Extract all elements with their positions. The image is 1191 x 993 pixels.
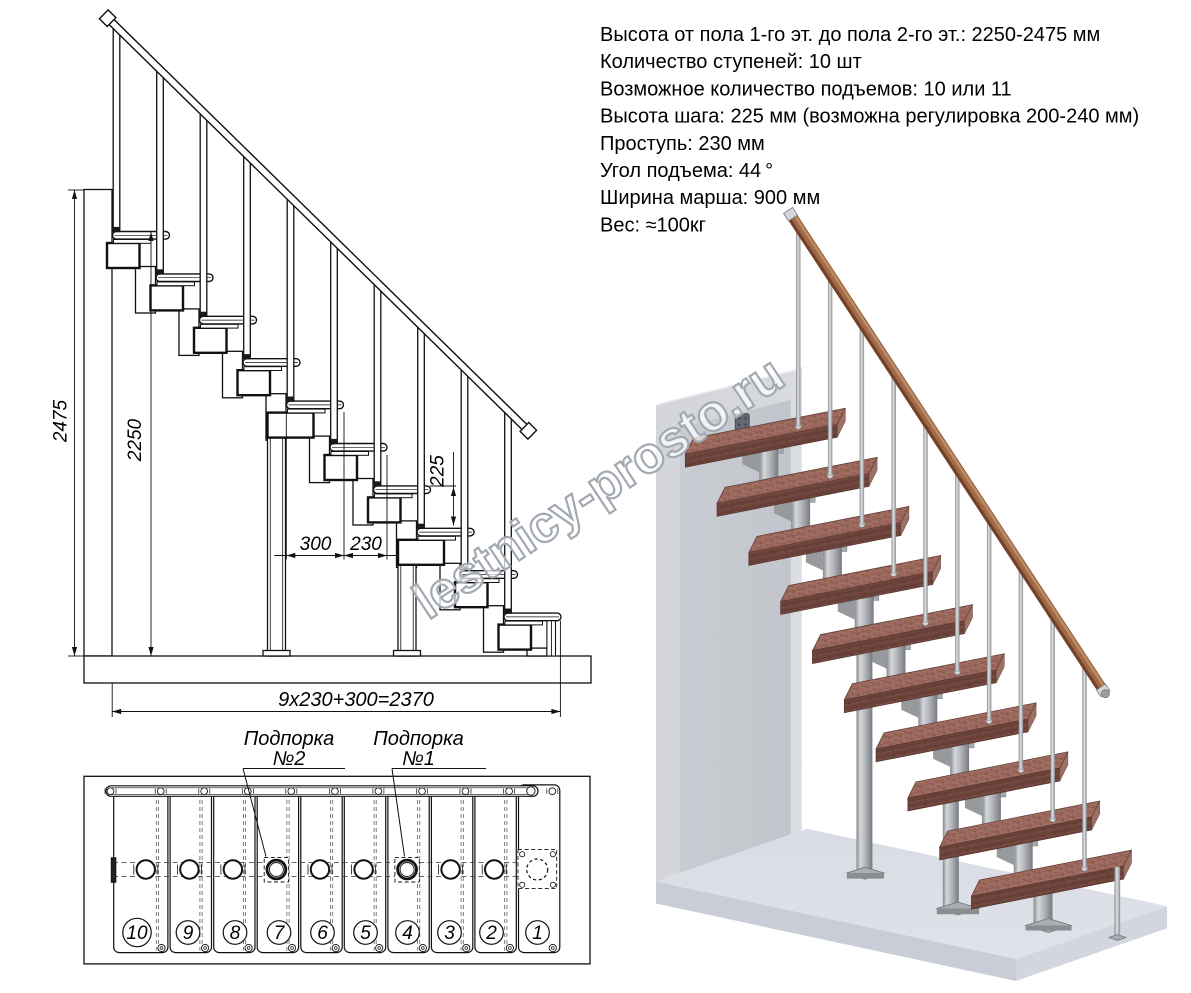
svg-text:225: 225 — [428, 455, 449, 488]
svg-text:6: 6 — [317, 923, 328, 944]
svg-text:230: 230 — [349, 534, 382, 555]
svg-text:4: 4 — [402, 923, 413, 944]
svg-text:№1: №1 — [402, 748, 435, 770]
svg-text:Высота шага: 225 мм (возможна: Высота шага: 225 мм (возможна регулировк… — [600, 106, 1139, 128]
svg-text:10: 10 — [126, 923, 148, 944]
svg-text:Угол подъема: 44 °: Угол подъема: 44 ° — [600, 160, 773, 182]
svg-text:1: 1 — [532, 923, 543, 944]
svg-text:300: 300 — [300, 534, 332, 555]
svg-text:Возможное количество подъемов:: Возможное количество подъемов: 10 или 11 — [600, 78, 1012, 100]
svg-text:9x230+300=2370: 9x230+300=2370 — [278, 689, 434, 711]
svg-text:2250: 2250 — [125, 418, 146, 462]
svg-text:Подпорка: Подпорка — [373, 728, 464, 750]
svg-text:Ширина марша: 900 мм: Ширина марша: 900 мм — [600, 187, 820, 209]
svg-text:2475: 2475 — [51, 399, 72, 443]
svg-text:7: 7 — [274, 923, 286, 944]
svg-text:3: 3 — [444, 923, 455, 944]
svg-text:Вес: ≈100кг: Вес: ≈100кг — [600, 214, 706, 236]
svg-text:Проступь: 230 мм: Проступь: 230 мм — [600, 133, 765, 155]
svg-text:Высота от пола 1-го эт. до пол: Высота от пола 1-го эт. до пола 2-го эт.… — [600, 24, 1100, 46]
svg-text:Количество ступеней: 10 шт: Количество ступеней: 10 шт — [600, 51, 862, 73]
svg-text:8: 8 — [230, 923, 241, 944]
svg-text:5: 5 — [360, 923, 371, 944]
svg-text:2: 2 — [485, 923, 497, 944]
svg-text:№2: №2 — [273, 748, 306, 770]
svg-text:Подпорка: Подпорка — [244, 728, 335, 750]
svg-text:9: 9 — [183, 923, 194, 944]
